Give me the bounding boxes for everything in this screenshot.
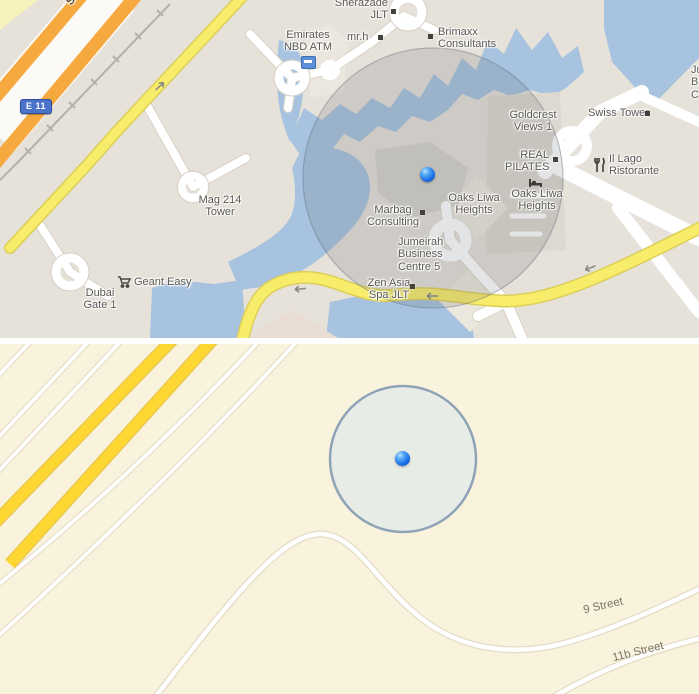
poi-label-il-lago-ristorante: Il Lago Ristorante (609, 153, 659, 178)
poi-label-brimaxx-consultants: Brimaxx Consultants (438, 26, 496, 51)
top-map[interactable]: Sheikh E 11 Sherazade JLT Emirates NBD A… (0, 0, 699, 338)
poi-label-mr-h: mr.h (347, 31, 368, 43)
poi-label-jumeirah-business-centre-5: Jumeirah Business Centre 5 (398, 236, 443, 273)
poi-label-dubai-gate-1: Dubai Gate 1 (83, 287, 116, 312)
bottom-map[interactable]: 9 Street 11b Street (0, 344, 699, 694)
bottom-map-canvas (0, 344, 699, 694)
poi-label-mag-214-tower: Mag 214 Tower (199, 194, 242, 219)
poi-marker (378, 35, 383, 40)
current-location-dot (395, 451, 410, 466)
atm-icon (301, 56, 316, 69)
poi-marker (420, 210, 425, 215)
poi-marker (410, 284, 415, 289)
poi-label-zen-asia-spa-jlt: Zen Asia Spa JLT (368, 277, 411, 302)
screenshot-root: Sheikh E 11 Sherazade JLT Emirates NBD A… (0, 0, 699, 694)
poi-label-real-pilates: REAL PILATES (505, 149, 549, 174)
poi-marker (645, 111, 650, 116)
poi-label-oaks-liwa-heights-right: Oaks Liwa Heights (511, 188, 562, 213)
poi-label-sherazade-jlt: Sherazade JLT (330, 0, 388, 22)
poi-label-marbag-consulting: Marbag Consulting (367, 204, 419, 229)
poi-label-emirates-nbd-atm: Emirates NBD ATM (284, 29, 332, 54)
poi-label-clipped-right-edge: Ju Bu Ce (691, 64, 699, 101)
lodging-icon (529, 178, 543, 187)
current-location-dot (420, 167, 435, 182)
poi-label-swiss-tower: Swiss Tower (588, 107, 649, 119)
restaurant-icon (594, 157, 606, 173)
poi-label-geant-easy: Geant Easy (134, 276, 191, 288)
poi-label-oaks-liwa-heights-left: Oaks Liwa Heights (448, 192, 499, 217)
poi-label-goldcrest-views-1: Goldcrest Views 1 (509, 109, 556, 134)
poi-marker (553, 157, 558, 162)
route-badge-e11: E 11 (20, 99, 52, 114)
shopping-cart-icon (117, 276, 131, 288)
poi-marker (428, 34, 433, 39)
poi-marker (391, 9, 396, 14)
